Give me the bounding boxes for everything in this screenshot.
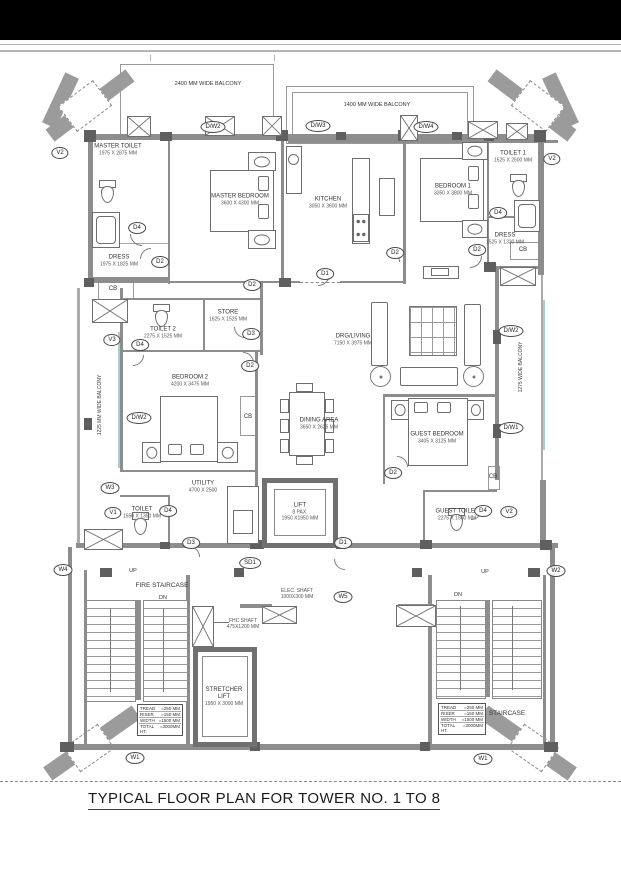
room-label-bedroom1: BEDROOM 13350 X 3800 MM [434,184,472,197]
marker-d2-bedroom2: D2 [241,360,259,372]
column-block [534,130,546,142]
bathtub-inner [96,216,116,244]
column-block [60,742,74,752]
staircase-divider [486,600,490,697]
marker-dw2-bedroom2: D/W2 [127,412,152,424]
glass-right-balcony [543,300,545,450]
vent-box [506,123,528,140]
stair-data-table-left: TREAD=250 MM RISER=150 MM WIDTH=1500 MM … [137,704,183,736]
staircase-label: STAIRCASE [489,711,525,717]
pillow [168,444,182,455]
dining-chair [280,439,289,453]
room-label-toilet1: TOILET 11525 X 2500 MM [494,151,532,164]
room-label-dining: DINING AREA3650 X 2625 MM [300,418,339,431]
column-block [160,542,170,549]
dining-chair [280,419,289,433]
wc-icon [155,310,168,327]
wall-bottom-outer [60,744,558,750]
table-cell: RISER [441,711,455,716]
room-name: TOILET 1 [494,151,532,158]
room-label-guest-toilet: GUEST TOILET2275 X 1500 MM [435,509,478,522]
marker-w1-left: W1 [126,752,145,764]
balcony-label-2: 1400 MM WIDE BALCONY [344,102,411,108]
column-block [84,278,94,287]
wall-entry-left [88,281,300,283]
room-label-toilet2: TOILET 22275 X 1525 MM [144,327,182,340]
marker-d4-toilet-small: D4 [159,505,177,517]
pillow [437,402,451,413]
table-cell: =250 MM [464,705,483,710]
balcony-label-1: 2400 MM WIDE BALCONY [175,81,242,87]
nightstand [217,442,238,463]
room-dims: 1550 X 1350 MM [123,514,161,520]
room-dims: 3350 X 3800 MM [434,191,472,197]
wall-entry-right [340,281,403,283]
ceiling-fan-icon [463,366,484,387]
room-label-utility: UTILITY4700 X 2500 [189,481,217,494]
stair-arrow-line [110,608,111,692]
room-dims: 2275 X 1525 MM [144,334,182,340]
room-name: DRESS [100,255,138,262]
room-label-drg-living: DRG/LIVING7150 X 3975 MM [334,334,372,347]
table-cell: =3000MM [463,723,483,733]
wall-guest-toilet-top [423,490,497,492]
column-block [484,262,496,272]
table-cell: TOTAL HT. [441,723,461,733]
dining-chair [296,383,313,392]
wall-left-lower [68,547,72,747]
staircase-flight-2 [492,600,542,699]
room-label-bedroom2: BEDROOM 24200 X 3475 MM [171,375,209,388]
table-cell: TREAD [441,705,456,710]
stair-data-table-right: TREAD=250 MM RISER=150 MM WIDTH=1500 MM … [438,703,486,735]
marker-v2-guest: V2 [500,506,517,518]
top-black-band [0,0,621,40]
pillow [258,176,269,191]
room-dims: 3600 X 4300 MM [211,201,269,207]
room-label-store: STORE1625 X 1525 MM [209,310,247,323]
wall-store-top [120,298,262,300]
up-label: UP [481,569,489,575]
stretcher-name: STRETCHER [205,687,243,694]
marker-d1-entry: D1 [316,268,334,280]
room-dims: 1525 X 2500 MM [494,158,532,164]
nightstand [462,220,488,238]
table-cell: WIDTH [140,718,155,723]
sofa-right [464,304,481,366]
stretcher-dims: 1950 X 3000 MM [205,701,243,707]
column-block [279,278,291,287]
room-dims: 1625 X 1525 MM [209,317,247,323]
sheet-line-1 [0,44,621,45]
marker-d4-master-toilet: D4 [128,222,146,234]
sofa-bottom [400,367,458,386]
room-name: GUEST BEDROOM [410,432,463,439]
room-name: DRG/LIVING [334,334,372,341]
kitchen-sink [288,154,299,165]
table-cell: =3000MM [160,724,180,734]
marker-d1-corridor: D1 [334,537,352,549]
floor-plan-sheet: MASTER TOILET1975 X 2875 MM MASTER BEDRO… [0,0,621,870]
living-carpet-grid [409,306,457,356]
room-name: DRESS [486,233,524,240]
marker-v2-left: V2 [51,147,68,159]
fhc-shaft-label: FHC SHAFT475X1200 MM [227,618,260,630]
room-name: BEDROOM 2 [171,375,209,382]
tick-mark-2 [274,55,275,61]
table-row: TOTAL HT.=3000MM [440,723,484,733]
tv-unit [431,268,449,276]
room-name: UTILITY [189,481,217,488]
table-cell: WIDTH [441,717,456,722]
marker-d2-guest: D2 [384,467,402,479]
room-name: MASTER TOILET [94,144,141,151]
wall-utility-top [120,470,257,472]
bathtub-inner [518,204,536,228]
marker-d2-dress-left: D2 [151,256,169,268]
table-cell: TOTAL HT. [140,724,158,734]
wc-icon [101,186,114,203]
wall-toilet-small-top [120,495,168,497]
stair-arrow-line [163,608,164,692]
staircase-flight-1 [436,600,486,699]
vent-box [84,529,123,550]
wall-stair-right-inner [428,575,432,745]
wall-toilet2-store [203,298,205,350]
wc-icon [134,518,147,535]
up-label: UP [129,568,137,574]
cb-label: CB [244,414,252,420]
table-cell: =150 MM [161,712,180,717]
sheet-line-2 [0,50,621,52]
table-cell: RISER [140,712,154,717]
column-block [420,540,432,549]
utility-sink [233,510,253,534]
wall-left-upper [88,134,93,284]
marker-dw2-right: D/W2 [499,325,524,337]
column-block [452,132,462,140]
room-label-kitchen: KITCHEN3050 X 3600 MM [309,197,347,210]
wall-kitchen-bed1 [403,140,406,284]
column-block [540,540,552,550]
wall-toilet-small-right [168,495,170,545]
marker-w4: W4 [54,564,73,576]
marker-d4-toilet1: D4 [489,207,507,219]
marker-w5: W5 [334,591,353,603]
fire-staircase-label: FIRE STAIRCASE [136,583,189,589]
room-name: BEDROOM 1 [434,184,472,191]
room-dims: 1975 X 2875 MM [94,151,141,157]
marker-w1-right: W1 [474,753,493,765]
door-arc [334,548,356,570]
room-dims: 1975 X 1825 MM [100,262,138,268]
marker-dw1-right: D/W1 [499,422,524,434]
table-cell: =250 MM [161,706,180,711]
nightstand [248,152,276,171]
column-block [528,568,540,577]
wall-stair-right-outer [543,575,546,745]
room-name: STORE [209,310,247,317]
marker-dw4-top: D/W4 [414,121,439,133]
cb-label: CB [489,474,497,480]
room-name: KITCHEN [309,197,347,204]
shaft-box [396,605,436,627]
room-label-toilet-small: TOILET1550 X 1350 MM [123,507,161,520]
marker-d3-utility: D3 [182,537,200,549]
nightstand [248,230,276,249]
fire-staircase-divider [136,600,141,700]
dining-chair [296,456,313,465]
dining-chair [325,399,334,413]
lift-label: LIFT8 PAX.1950 X1950 MM [282,503,319,522]
elec-shaft-box [262,606,297,624]
room-label-dress-right: DRESS1525 X 1330 MM [486,233,524,246]
column-block [420,742,430,751]
stretcher-lift-label: STRETCHERLIFT1950 X 3000 MM [205,687,243,707]
room-dims: 4200 X 3475 MM [171,382,209,388]
nightstand [462,142,488,160]
marker-d2-kitchen: D2 [386,247,404,259]
marker-d2-bedroom1: D2 [468,244,486,256]
tick-mark-1 [150,55,151,61]
column-block [84,130,96,142]
marker-v2-right-top: V2 [543,153,560,165]
sheet-bottom-dashed-line [0,781,621,782]
pillow [414,402,428,413]
dining-chair [280,399,289,413]
room-name: GUEST TOILET [435,509,478,516]
column-block [336,132,346,140]
room-label-guest-bedroom: GUEST BEDROOM3405 X 3125 MM [410,432,463,445]
wall-guest-top [383,394,497,397]
stair-arrow-line [460,606,461,690]
door-arc [178,546,200,568]
room-dims: 7150 X 3975 MM [334,341,372,347]
wall-right-apartment [495,268,499,480]
room-label-master-bedroom: MASTER BEDROOM3600 X 4300 MM [211,194,269,207]
sofa-left [371,302,388,366]
room-dims: 3050 X 3600 MM [309,204,347,210]
elec-shaft-label: ELEC. SHAFT1000X300 MM [281,588,314,600]
room-name: TOILET [123,507,161,514]
marker-sd1: SD1 [239,557,261,569]
wall-store-right [260,281,263,355]
refrigerator [379,178,395,216]
marker-d4-guest-toilet: D4 [474,505,492,517]
stretcher-name2: LIFT [205,694,243,701]
nightstand [467,400,484,420]
marker-w2: W2 [547,565,566,577]
ceiling-fan-icon [370,366,391,387]
lift-name: LIFT [282,503,319,510]
cb-label: CB [109,286,117,292]
stove-burners [353,214,369,242]
marker-dw3-top: D/W3 [306,120,331,132]
vent-box [468,121,498,139]
wall-left-balcony-outer [77,288,80,547]
room-name: TOILET 2 [144,327,182,334]
dn-label: DN [159,595,167,601]
room-label-dress-left: DRESS1975 X 1825 MM [100,255,138,268]
shaft-dims: 475X1200 MM [227,624,260,630]
column-block [100,568,112,577]
room-dims: 1525 X 1330 MM [486,240,524,246]
lift-dims: 1950 X1950 MM [282,516,319,522]
nightstand [391,400,409,420]
room-label-master-toilet: MASTER TOILET1975 X 2875 MM [94,144,141,157]
pillow [190,444,204,455]
table-cell: =1500 MM [159,718,180,723]
vent-box [127,116,151,137]
pillow [468,166,479,181]
vent-box [262,116,282,136]
marker-d4-toilet2: D4 [131,339,149,351]
marker-v1: V1 [104,507,121,519]
wall-masterbed-kitchen [281,140,284,284]
column-block [412,568,422,577]
nightstand [142,442,161,463]
wc-icon [512,180,525,197]
balcony-label-4: 1275 WIDE BALCONY [518,342,524,393]
column-block [84,418,92,430]
cb-label: CB [519,247,527,253]
dining-chair [325,439,334,453]
room-name: MASTER BEDROOM [211,194,269,201]
table-cell: =1500 MM [462,717,483,722]
table-row: TOTAL HT.=3000MM [139,724,181,734]
balcony-label-3: 1225 MM WIDE BALCONY [97,375,103,436]
glass-left-balcony [118,332,120,468]
wall-right-lower [550,547,555,747]
column-block [160,132,172,141]
plan-title: TYPICAL FLOOR PLAN FOR TOWER NO. 1 TO 8 [88,790,440,810]
room-name: DINING AREA [300,418,339,425]
vent-box [92,299,128,323]
table-cell: =150 MM [464,711,483,716]
marker-dw2-top: D/W2 [201,121,226,133]
column-block [544,742,558,752]
room-dims: 3405 X 3125 MM [410,439,463,445]
fire-staircase-flight-1 [86,600,136,702]
table-cell: TREAD [140,706,155,711]
wall-guest-toilet-left [423,490,425,545]
stair-arrow-line [512,606,513,690]
room-dims: 3650 X 2625 MM [300,425,339,431]
room-dims: 2275 X 1500 MM [435,516,478,522]
shaft-dims: 1000X300 MM [281,594,314,600]
wall-right-mid [540,480,546,547]
vent-box [500,267,536,286]
dn-label: DN [454,592,462,598]
column-block [234,568,244,577]
room-dims: 4700 X 2500 [189,488,217,494]
fire-staircase-flight-2 [143,600,188,702]
marker-d2-store-top: D2 [243,279,261,291]
wall-top-right [288,140,558,143]
marker-d3-store: D3 [242,328,260,340]
marker-w3: W3 [101,482,120,494]
fhc-shaft-box [192,606,214,647]
